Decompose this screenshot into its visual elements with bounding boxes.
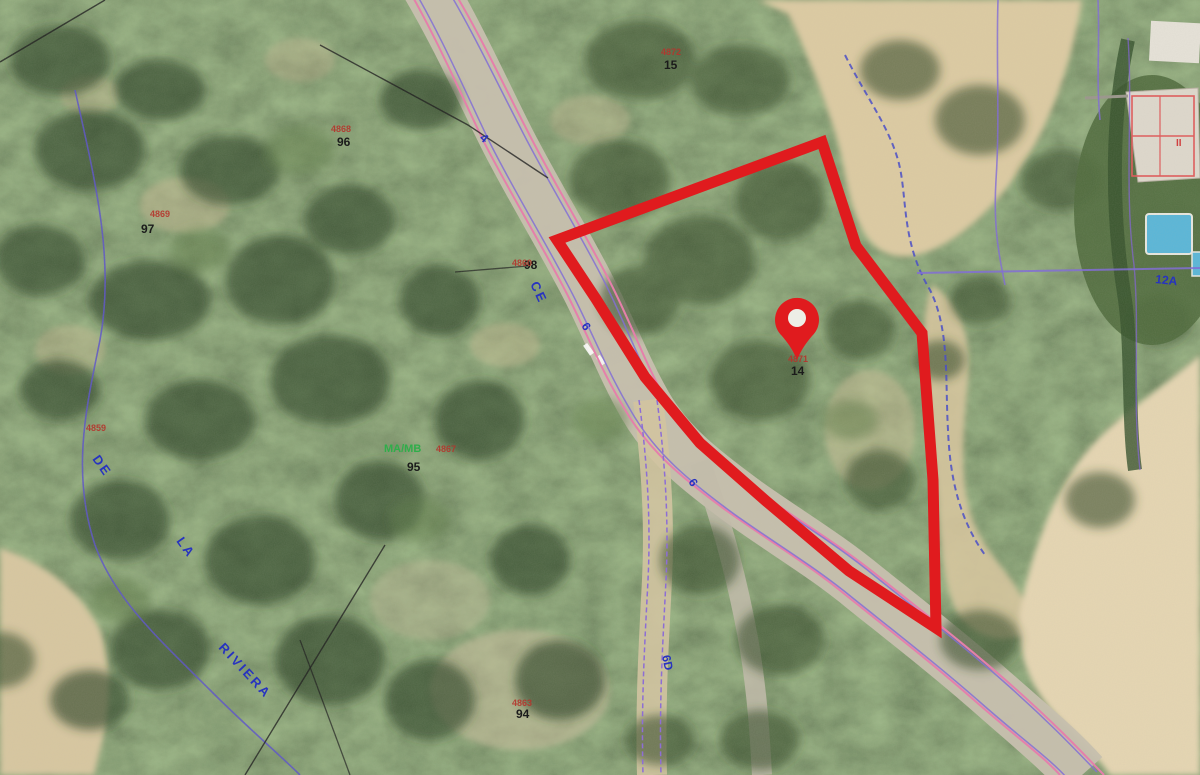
pin-hole xyxy=(788,309,806,327)
parcel-number-95: 95 xyxy=(407,460,421,474)
parcel-number-94: 94 xyxy=(516,707,530,721)
map-canvas[interactable]: 9648689748699848609548679448631548721448… xyxy=(0,0,1200,775)
photo-grain-overlay xyxy=(0,0,1200,775)
landuse-code: MA/MB xyxy=(384,443,421,455)
parcel-number-14: 14 xyxy=(791,364,805,378)
house-number-12a: 12A xyxy=(1155,272,1179,288)
ref-number-above-98: 4860 xyxy=(512,258,532,268)
ref-number-above-14: 4871 xyxy=(788,354,808,364)
ref-number-above-94: 4863 xyxy=(512,698,532,708)
ref-number-above-97: 4869 xyxy=(150,209,170,219)
ref-number-above-95: 4867 xyxy=(436,444,456,454)
aerial-map[interactable]: 9648689748699848609548679448631548721448… xyxy=(0,0,1200,775)
building-floors-label: II xyxy=(1176,138,1182,149)
ref-number-above-15: 4872 xyxy=(661,47,681,57)
parcel-number-15: 15 xyxy=(664,58,678,72)
parcel-number-97: 97 xyxy=(141,222,155,236)
parcel-number-96: 96 xyxy=(337,135,351,149)
ref-number-above-96: 4868 xyxy=(331,124,351,134)
ref-number-left: 4859 xyxy=(86,423,106,433)
